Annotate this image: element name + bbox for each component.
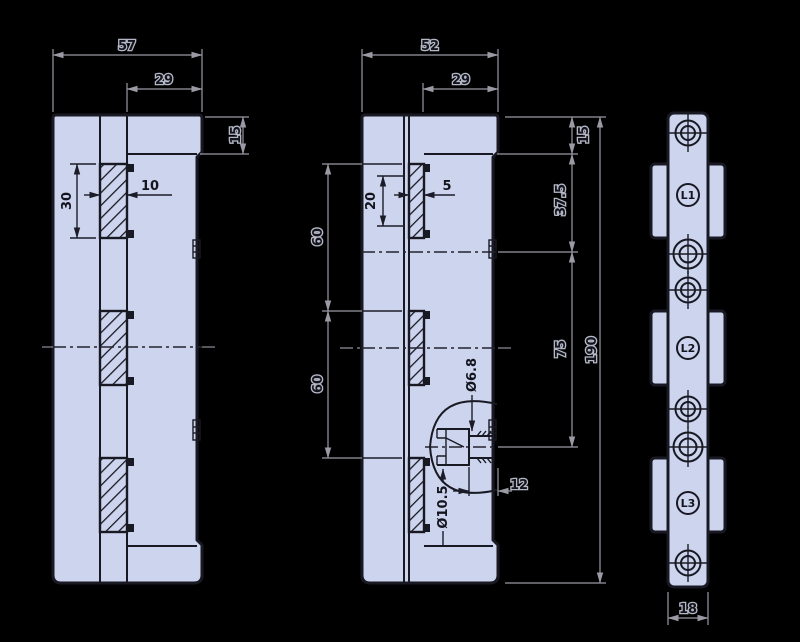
side-view: L1 L2 L3 <box>651 113 725 587</box>
dim-front-top-step: 15 <box>229 126 244 144</box>
dim-through-hole-dia: Ø6.8 <box>465 358 480 392</box>
dim-side-thickness: 18 <box>679 602 697 617</box>
front-slot-1 <box>100 164 127 238</box>
front-view <box>42 115 216 583</box>
label-l3: L3 <box>681 497 696 510</box>
section-slot-3 <box>409 458 424 532</box>
dim-front-flange-width: 29 <box>155 73 173 88</box>
dim-section-slot-pitch-2: 60 <box>311 375 326 393</box>
dim-section-top-step: 15 <box>577 126 592 144</box>
dim-section-slot-opening-length: 20 <box>364 192 379 210</box>
dim-front-overall-width: 57 <box>118 39 136 54</box>
section-slot-1 <box>409 164 424 238</box>
front-slot-2 <box>100 311 127 385</box>
dim-section-hole-pitch: 75 <box>554 340 569 358</box>
label-l2: L2 <box>681 342 696 355</box>
front-slot-3 <box>100 458 127 532</box>
dim-section-step-to-hole: 37.5 <box>554 184 569 216</box>
dim-counterbore-to-face: 12 <box>510 478 528 493</box>
section-view <box>340 115 512 583</box>
dim-counterbore-dia: Ø10.5 <box>436 485 451 528</box>
technical-drawing-canvas: L1 L2 L3 <box>0 0 800 642</box>
dim-section-flange-width: 29 <box>452 73 470 88</box>
dim-front-slot-length: 30 <box>60 192 75 210</box>
dim-section-slot-opening-width: 5 <box>442 179 451 194</box>
label-l1: L1 <box>681 189 696 202</box>
dim-section-slot-pitch-1: 60 <box>311 228 326 246</box>
dim-section-overall-height: 190 <box>585 336 600 363</box>
dim-front-slot-width: 10 <box>141 179 159 194</box>
technical-drawing: L1 L2 L3 <box>0 0 800 642</box>
dim-section-overall-width: 52 <box>421 39 439 54</box>
